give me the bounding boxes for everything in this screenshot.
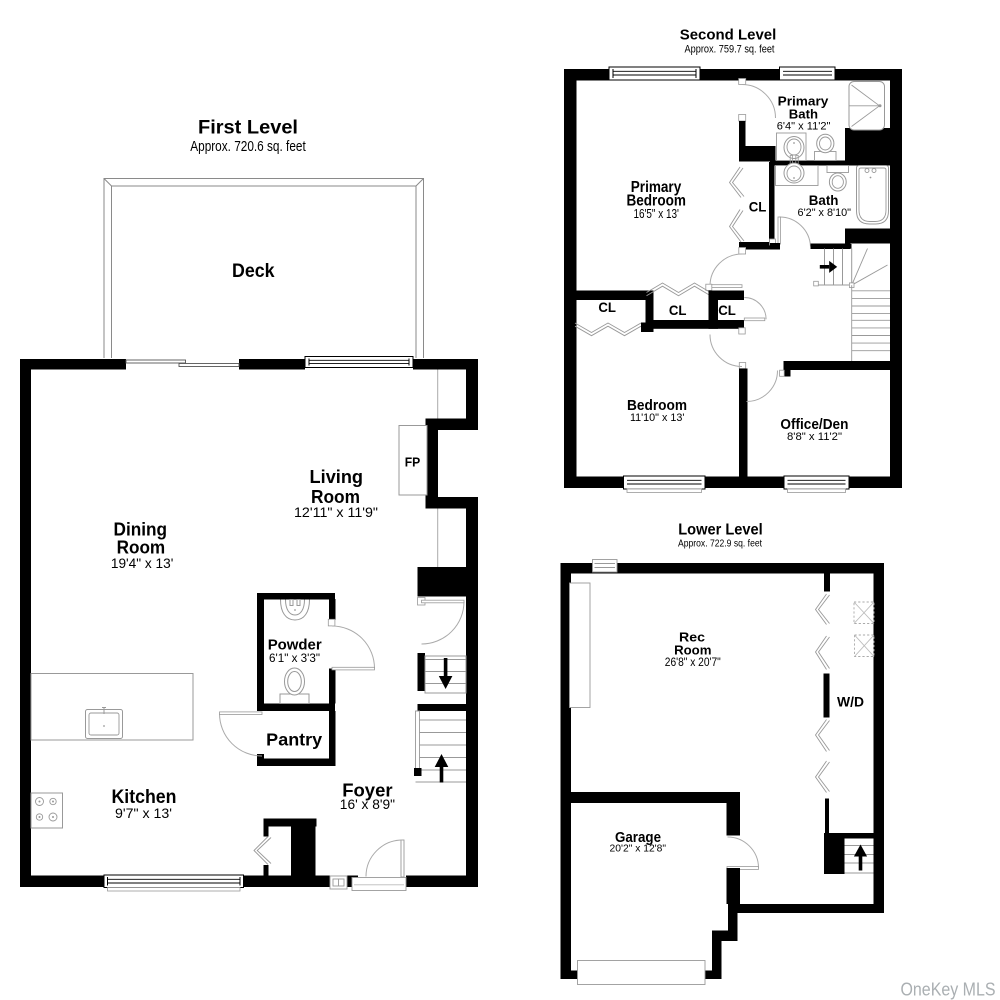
svg-text:6'4" x 11'2": 6'4" x 11'2" bbox=[777, 120, 831, 132]
svg-text:6'2" x 8'10": 6'2" x 8'10" bbox=[798, 207, 852, 219]
svg-text:First Level: First Level bbox=[198, 117, 298, 139]
svg-text:Kitchen: Kitchen bbox=[112, 787, 177, 808]
svg-text:CL: CL bbox=[749, 199, 767, 215]
svg-text:12'11" x 11'9": 12'11" x 11'9" bbox=[294, 505, 378, 520]
svg-text:Bath: Bath bbox=[789, 106, 818, 121]
svg-text:W/D: W/D bbox=[837, 695, 864, 710]
svg-text:Bath: Bath bbox=[809, 192, 839, 208]
svg-text:Pantry: Pantry bbox=[266, 730, 322, 750]
svg-text:Living: Living bbox=[310, 466, 364, 487]
svg-text:Approx. 720.6 sq. feet: Approx. 720.6 sq. feet bbox=[190, 139, 306, 155]
svg-text:19'4" x 13': 19'4" x 13' bbox=[111, 556, 174, 571]
svg-text:FP: FP bbox=[405, 454, 421, 469]
svg-text:Approx. 722.9 sq. feet: Approx. 722.9 sq. feet bbox=[678, 537, 762, 549]
svg-text:16'5" x 13': 16'5" x 13' bbox=[633, 207, 679, 221]
svg-text:16' x 8'9": 16' x 8'9" bbox=[340, 797, 395, 812]
svg-text:Lower Level: Lower Level bbox=[678, 521, 763, 538]
svg-text:8'8" x 11'2": 8'8" x 11'2" bbox=[787, 431, 842, 443]
svg-text:11'10" x 13': 11'10" x 13' bbox=[630, 412, 685, 424]
svg-text:Second Level: Second Level bbox=[680, 27, 777, 44]
svg-text:Deck: Deck bbox=[232, 260, 275, 282]
svg-text:6'1" x 3'3": 6'1" x 3'3" bbox=[269, 651, 320, 665]
svg-text:Room: Room bbox=[117, 536, 166, 557]
svg-text:CL: CL bbox=[598, 299, 616, 315]
svg-text:CL: CL bbox=[718, 302, 736, 318]
svg-text:Room: Room bbox=[311, 486, 360, 507]
svg-text:26'8" x 20'7": 26'8" x 20'7" bbox=[665, 655, 721, 669]
svg-text:9'7" x 13': 9'7" x 13' bbox=[115, 806, 172, 821]
svg-text:OneKey MLS: OneKey MLS bbox=[901, 978, 996, 999]
svg-text:Approx. 759.7 sq. feet: Approx. 759.7 sq. feet bbox=[685, 44, 775, 56]
svg-text:20'2" x 12'8": 20'2" x 12'8" bbox=[610, 843, 667, 855]
svg-text:CL: CL bbox=[669, 302, 687, 318]
